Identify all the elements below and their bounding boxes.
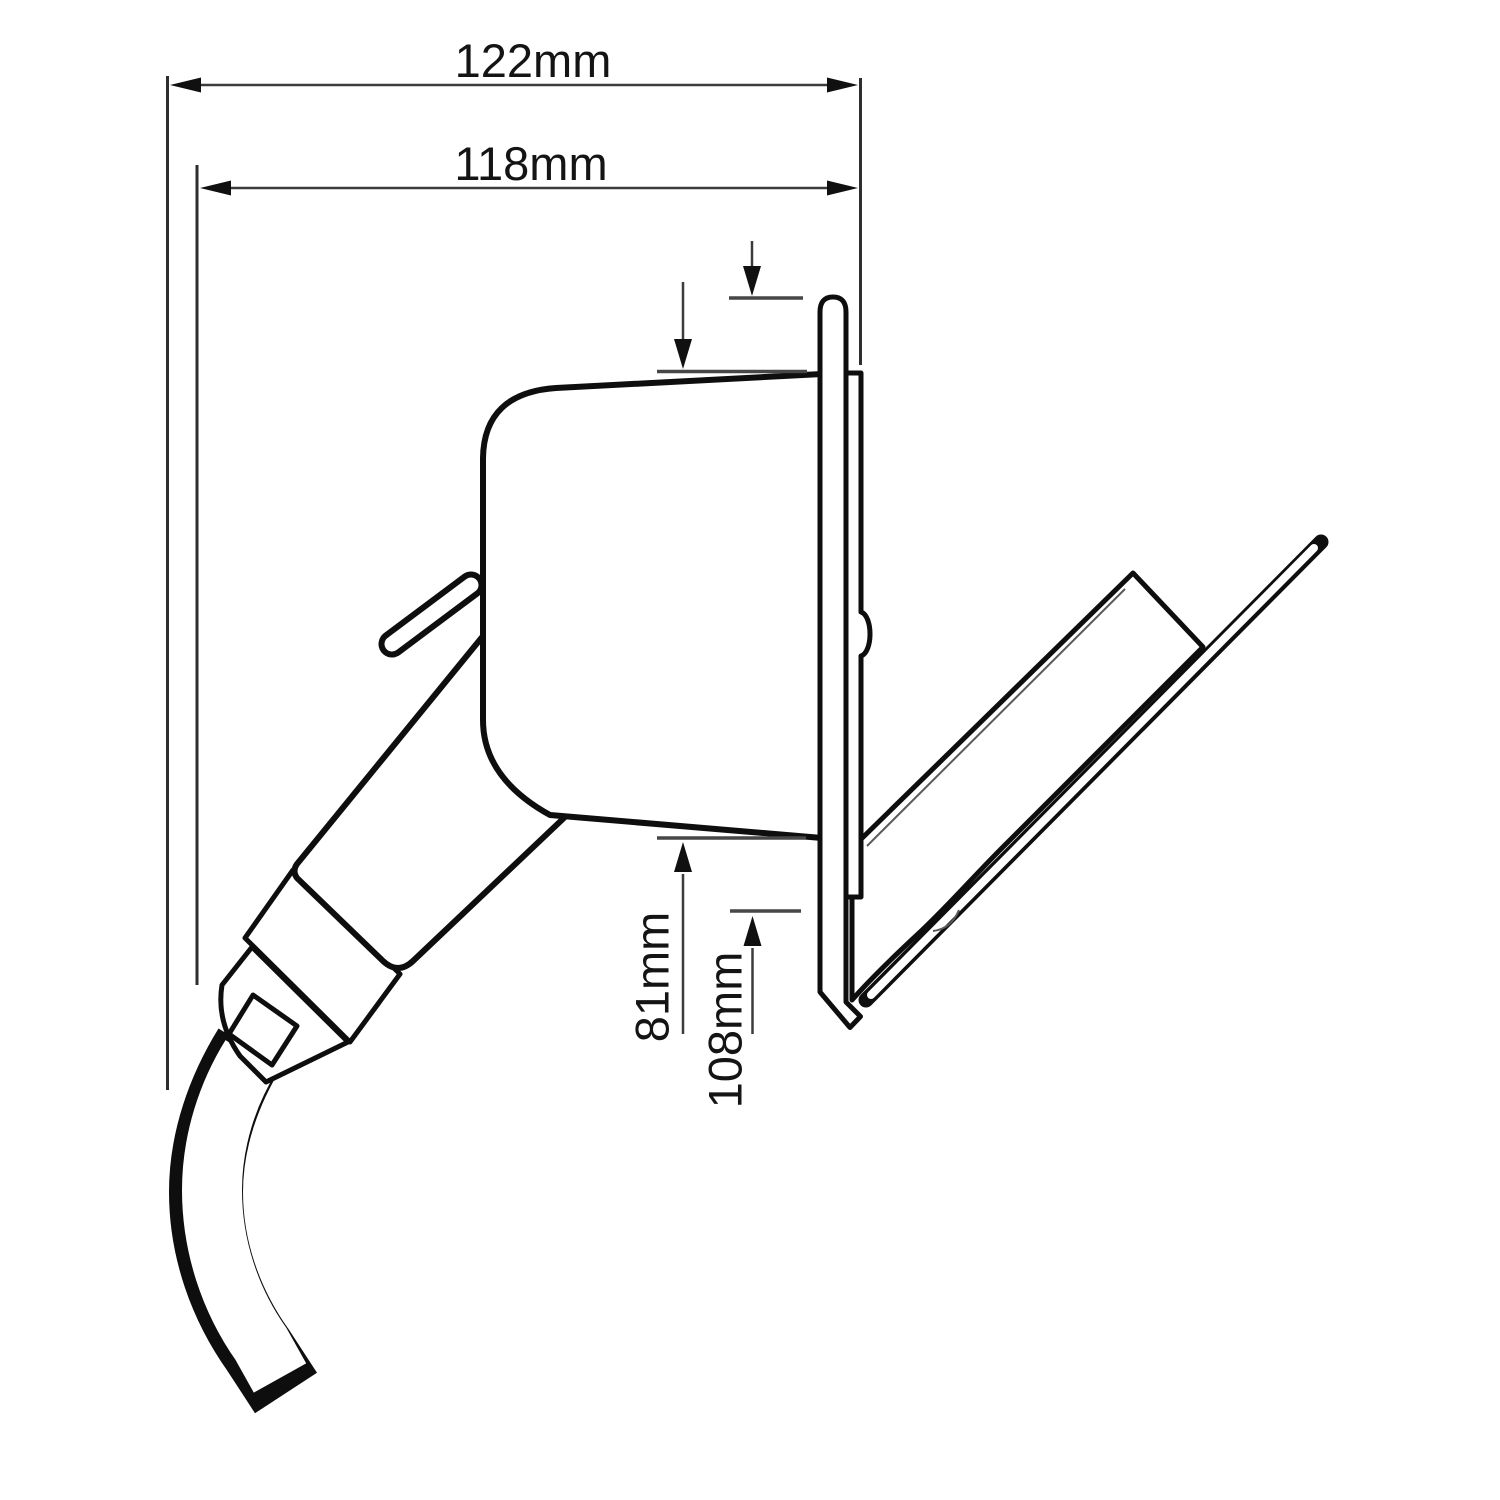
cable [206, 1048, 286, 1393]
arrow-right-icon [827, 181, 858, 196]
dimension-label-108mm: 108mm [698, 952, 751, 1109]
technical-drawing-page: 122mm 118mm [0, 0, 1500, 1500]
socket-body [483, 374, 822, 838]
rear-flange [846, 373, 870, 897]
arrow-left-icon [170, 78, 201, 93]
arrow-down-icon [674, 339, 692, 369]
top-reference-pointers [657, 241, 807, 372]
cable-inner [212, 1056, 280, 1378]
lid-assembly [852, 542, 1321, 1000]
arrow-left-icon [200, 181, 231, 196]
arrow-up-icon [674, 842, 692, 872]
socket-dimension-diagram: 122mm 118mm [0, 0, 1500, 1500]
dimension-label-118mm: 118mm [454, 137, 607, 190]
hinged-lid-dome [852, 573, 1203, 1000]
latch-lever [392, 585, 471, 644]
dimension-108mm: 108mm [698, 911, 801, 1108]
arrow-right-icon [827, 78, 858, 93]
dimension-118mm: 118mm [200, 137, 858, 196]
arrow-up-icon [744, 916, 762, 946]
lid-dome-outline [852, 573, 1203, 1000]
latch-lever-inner [392, 585, 471, 644]
dimension-label-122mm: 122mm [455, 34, 612, 87]
arrow-down-icon [743, 266, 761, 296]
dimension-label-81mm: 81mm [625, 912, 678, 1043]
dimension-122mm: 122mm [170, 34, 858, 93]
